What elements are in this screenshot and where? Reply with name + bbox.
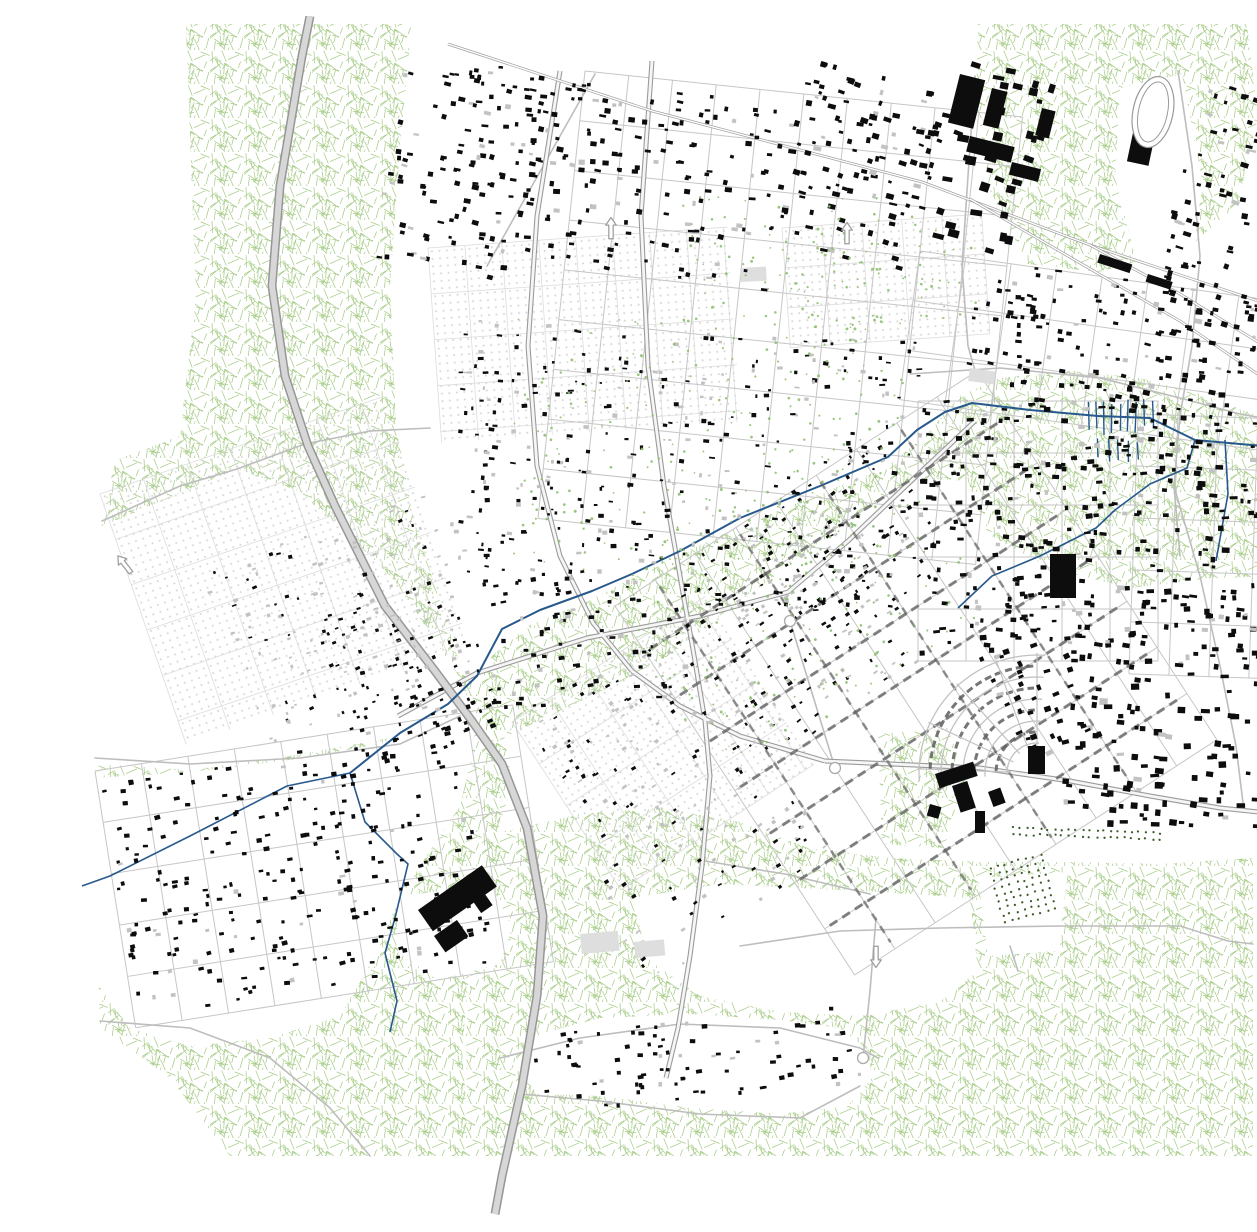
paved-lot	[634, 939, 665, 958]
large-building	[975, 811, 985, 833]
paved-lot	[580, 931, 620, 954]
map-figure	[40, 16, 1257, 1216]
drainage-ditch	[1144, 399, 1145, 426]
drainage-ditch	[1088, 402, 1089, 430]
roundabout	[858, 1053, 869, 1064]
drainage-ditch	[1117, 438, 1118, 460]
field-east-clearing	[978, 872, 1068, 956]
drainage-ditch	[1127, 400, 1128, 432]
city-map	[40, 16, 1257, 1216]
paved-lot	[740, 267, 767, 282]
large-building	[1028, 746, 1045, 774]
large-building	[1050, 554, 1076, 598]
roundabout	[785, 616, 796, 627]
drainage-ditch	[1109, 439, 1110, 462]
roundabout	[830, 763, 841, 774]
